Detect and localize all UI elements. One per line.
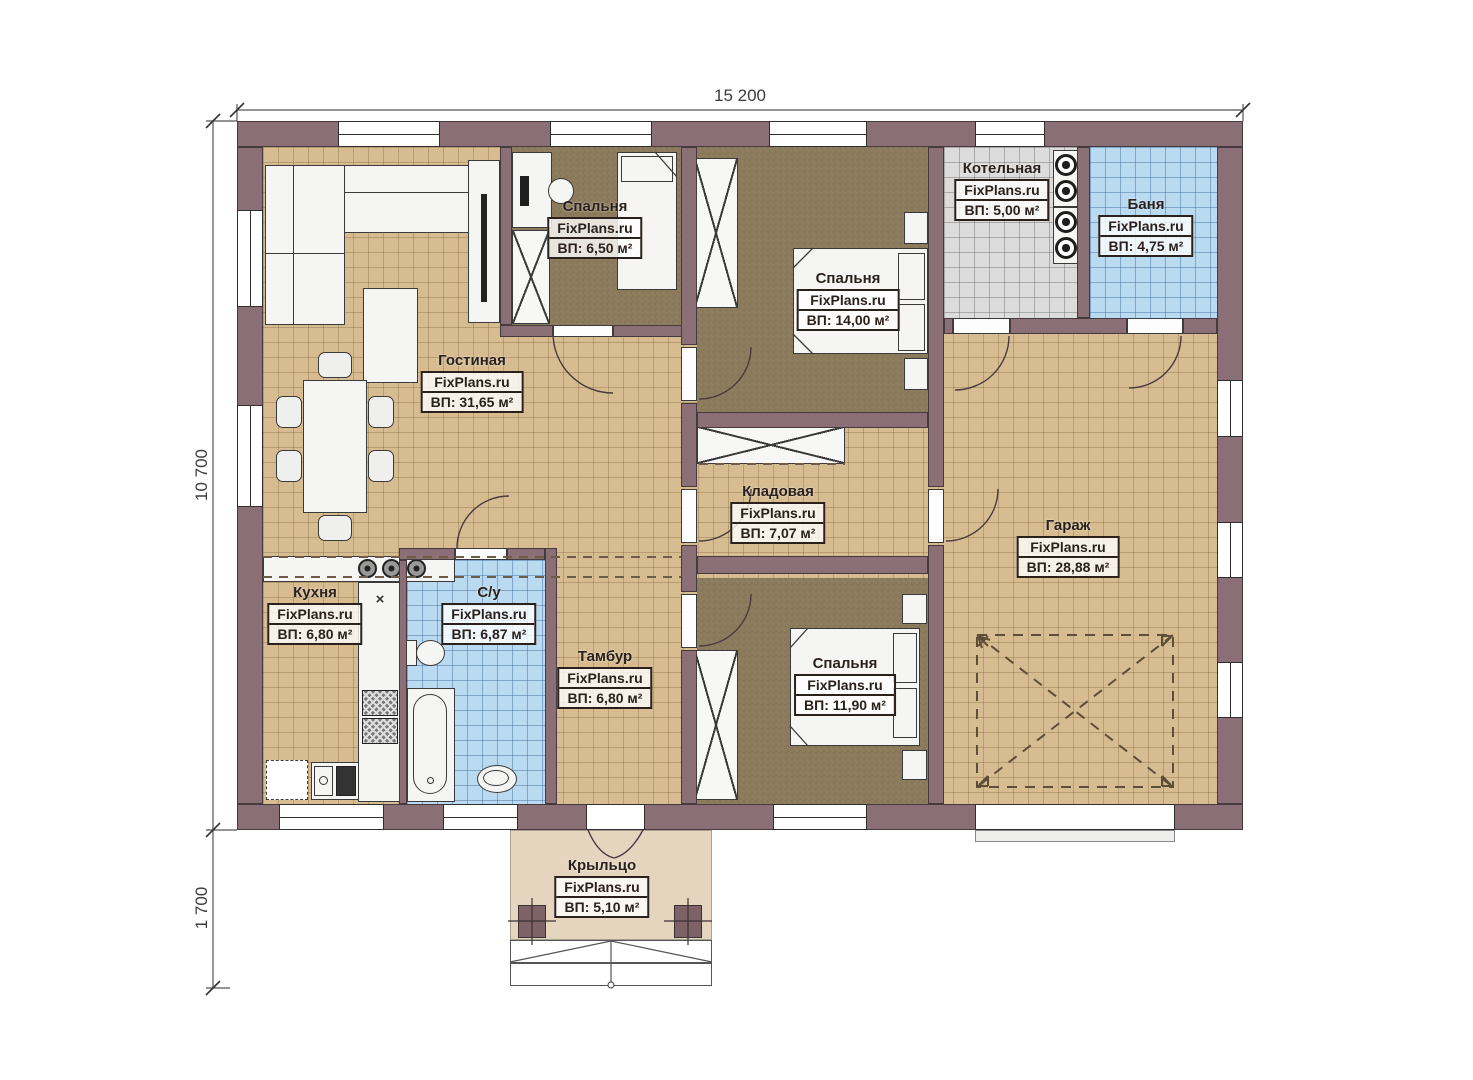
room-info-box: FixPlans.ru ВП: 4,75 м² bbox=[1098, 215, 1193, 257]
dimension-width: 15 200 bbox=[714, 86, 766, 106]
room-name: Спальня bbox=[794, 655, 896, 672]
room-label-living: Гостиная FixPlans.ru ВП: 31,65 м² bbox=[421, 352, 524, 413]
room-info-box: FixPlans.ru ВП: 6,80 м² bbox=[557, 667, 652, 709]
door-arc-boiler bbox=[955, 336, 1009, 390]
room-area: ВП: 11,90 м² bbox=[796, 694, 894, 714]
watermark: FixPlans.ru bbox=[443, 605, 534, 623]
watermark: FixPlans.ru bbox=[556, 878, 647, 896]
room-area: ВП: 6,80 м² bbox=[269, 623, 360, 643]
room-name: Кладовая bbox=[730, 483, 825, 500]
room-name: Баня bbox=[1098, 196, 1193, 213]
room-info-box: FixPlans.ru ВП: 7,07 м² bbox=[730, 502, 825, 544]
door-arc-bedroom-small bbox=[553, 333, 613, 393]
room-area: ВП: 14,00 м² bbox=[799, 309, 898, 329]
door-arc-wc bbox=[457, 496, 509, 548]
room-label-storage: Кладовая FixPlans.ru ВП: 7,07 м² bbox=[730, 483, 825, 544]
room-info-box: FixPlans.ru ВП: 6,87 м² bbox=[441, 603, 536, 645]
dimension-height: 10 700 bbox=[192, 449, 212, 501]
room-label-porch: Крыльцо FixPlans.ru ВП: 5,10 м² bbox=[554, 857, 649, 918]
room-area: ВП: 7,07 м² bbox=[732, 522, 823, 542]
room-area: ВП: 6,87 м² bbox=[443, 623, 534, 643]
room-info-box: FixPlans.ru ВП: 6,80 м² bbox=[267, 603, 362, 645]
room-label-tambour: Тамбур FixPlans.ru ВП: 6,80 м² bbox=[557, 648, 652, 709]
room-name: С/у bbox=[441, 584, 536, 601]
room-area: ВП: 6,50 м² bbox=[549, 237, 640, 257]
door-arcs bbox=[457, 333, 1181, 858]
room-name: Тамбур bbox=[557, 648, 652, 665]
room-info-box: FixPlans.ru ВП: 6,50 м² bbox=[547, 217, 642, 259]
watermark: FixPlans.ru bbox=[1100, 217, 1191, 235]
room-info-box: FixPlans.ru ВП: 14,00 м² bbox=[797, 289, 900, 331]
room-label-bedroom-11: Спальня FixPlans.ru ВП: 11,90 м² bbox=[794, 655, 896, 716]
room-name: Кухня bbox=[267, 584, 362, 601]
door-arc-bedroom-11 bbox=[699, 594, 751, 646]
door-arc-bedroom-14 bbox=[699, 347, 751, 399]
room-name: Гостиная bbox=[421, 352, 524, 369]
room-label-boiler: Котельная FixPlans.ru ВП: 5,00 м² bbox=[954, 160, 1049, 221]
door-arc-banya bbox=[1129, 336, 1181, 388]
room-label-garage: Гараж FixPlans.ru ВП: 28,88 м² bbox=[1017, 517, 1120, 578]
room-area: ВП: 5,00 м² bbox=[956, 199, 1047, 219]
watermark: FixPlans.ru bbox=[549, 219, 640, 237]
room-label-wc: С/у FixPlans.ru ВП: 6,87 м² bbox=[441, 584, 536, 645]
room-area: ВП: 6,80 м² bbox=[559, 687, 650, 707]
watermark: FixPlans.ru bbox=[732, 504, 823, 522]
room-area: ВП: 4,75 м² bbox=[1100, 235, 1191, 255]
watermark: FixPlans.ru bbox=[1019, 538, 1118, 556]
room-info-box: FixPlans.ru ВП: 31,65 м² bbox=[421, 371, 524, 413]
room-label-bedroom-small: Спальня FixPlans.ru ВП: 6,50 м² bbox=[547, 198, 642, 259]
watermark: FixPlans.ru bbox=[799, 291, 898, 309]
room-label-banya: Баня FixPlans.ru ВП: 4,75 м² bbox=[1098, 196, 1193, 257]
garage-parking-marking bbox=[977, 635, 1173, 787]
room-area: ВП: 28,88 м² bbox=[1019, 556, 1118, 576]
bed-fold-lines bbox=[655, 152, 813, 746]
floor-plan-canvas: × bbox=[0, 0, 1473, 1080]
room-name: Крыльцо bbox=[554, 857, 649, 874]
room-name: Спальня bbox=[547, 198, 642, 215]
dimension-porch: 1 700 bbox=[192, 887, 212, 930]
front-door-swing bbox=[588, 830, 643, 858]
room-info-box: FixPlans.ru ВП: 28,88 м² bbox=[1017, 536, 1120, 578]
room-name: Спальня bbox=[797, 270, 900, 287]
room-name: Гараж bbox=[1017, 517, 1120, 534]
room-info-box: FixPlans.ru ВП: 5,10 м² bbox=[554, 876, 649, 918]
room-label-bedroom-14: Спальня FixPlans.ru ВП: 14,00 м² bbox=[797, 270, 900, 331]
door-arc-garage bbox=[946, 489, 998, 541]
room-label-kitchen: Кухня FixPlans.ru ВП: 6,80 м² bbox=[267, 584, 362, 645]
room-info-box: FixPlans.ru ВП: 11,90 м² bbox=[794, 674, 896, 716]
watermark: FixPlans.ru bbox=[269, 605, 360, 623]
watermark: FixPlans.ru bbox=[559, 669, 650, 687]
room-area: ВП: 5,10 м² bbox=[556, 896, 647, 916]
watermark: FixPlans.ru bbox=[956, 181, 1047, 199]
porch-step-lines bbox=[510, 940, 712, 988]
room-name: Котельная bbox=[954, 160, 1049, 177]
room-info-box: FixPlans.ru ВП: 5,00 м² bbox=[954, 179, 1049, 221]
room-area: ВП: 31,65 м² bbox=[423, 391, 522, 411]
watermark: FixPlans.ru bbox=[796, 676, 894, 694]
watermark: FixPlans.ru bbox=[423, 373, 522, 391]
